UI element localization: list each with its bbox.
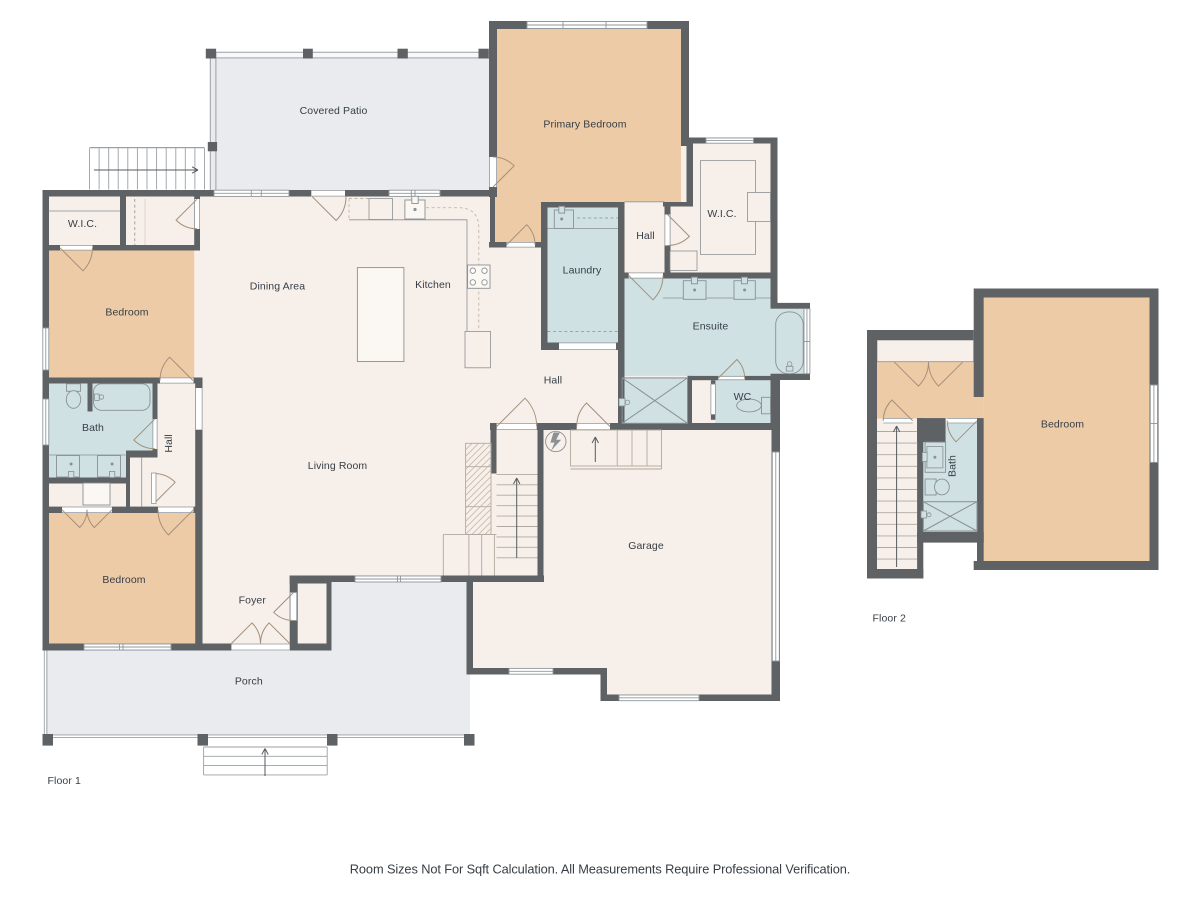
svg-text:Bath: Bath: [947, 455, 959, 477]
svg-text:Bedroom: Bedroom: [105, 307, 148, 319]
svg-text:Bedroom: Bedroom: [102, 574, 145, 586]
svg-text:Room Sizes Not For Sqft Calcul: Room Sizes Not For Sqft Calculation. All…: [350, 862, 850, 877]
svg-text:Covered Patio: Covered Patio: [300, 105, 368, 117]
svg-text:Bath: Bath: [82, 422, 104, 434]
svg-text:W.I.C.: W.I.C.: [68, 218, 97, 230]
svg-text:WC: WC: [734, 391, 752, 403]
svg-text:W.I.C.: W.I.C.: [707, 208, 736, 220]
svg-text:Primary Bedroom: Primary Bedroom: [543, 119, 626, 131]
svg-text:Bedroom: Bedroom: [1041, 419, 1084, 431]
svg-text:Hall: Hall: [636, 230, 655, 242]
svg-text:Kitchen: Kitchen: [415, 279, 451, 291]
svg-text:Foyer: Foyer: [239, 595, 267, 607]
svg-text:Floor 2: Floor 2: [873, 613, 906, 625]
svg-text:Laundry: Laundry: [563, 265, 602, 277]
svg-text:Dining Area: Dining Area: [250, 281, 305, 293]
svg-text:Porch: Porch: [235, 676, 263, 688]
svg-text:Living Room: Living Room: [308, 460, 368, 472]
svg-text:Hall: Hall: [163, 434, 175, 453]
svg-text:Garage: Garage: [628, 540, 664, 552]
svg-text:Hall: Hall: [544, 375, 563, 387]
svg-text:Ensuite: Ensuite: [693, 321, 729, 333]
svg-text:Floor 1: Floor 1: [48, 775, 81, 787]
